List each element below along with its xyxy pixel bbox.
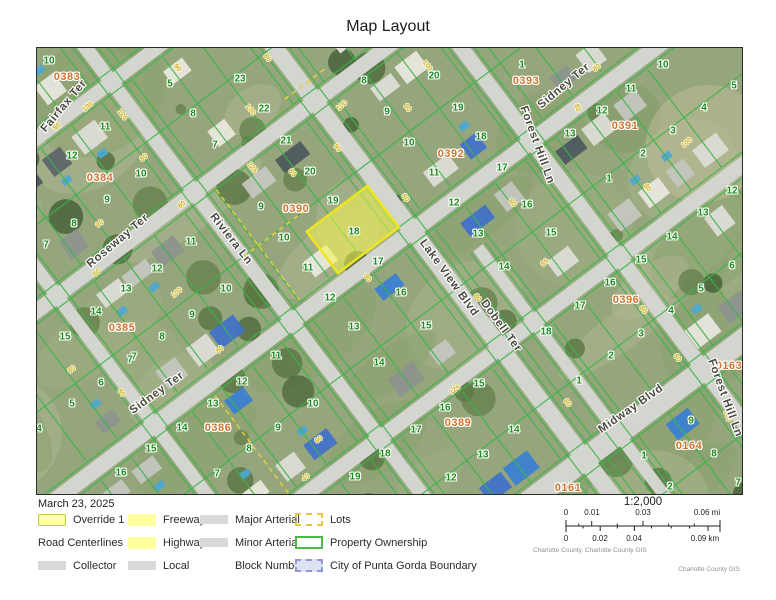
legend-column: Override 1Road CenterlinesCollector [38, 508, 124, 577]
scale-bar: 1:2,000 00.010.030. [520, 496, 760, 566]
legend-item-label: Freeway [163, 514, 205, 526]
scale-km-label: 0.02 [592, 534, 608, 543]
legend-column: LotsProperty OwnershipCity of Punta Gord… [295, 508, 477, 577]
scale-km-label: 0 [564, 534, 568, 543]
legend-item-label: Override 1 [73, 514, 124, 526]
legend-swatch-road [38, 561, 66, 570]
map-layout-page: Map Layout 10012580908010012580901008080… [0, 0, 776, 600]
legend-item: Major Arterial [200, 508, 304, 531]
legend-item-label: Highway [163, 537, 205, 549]
legend-swatch-none [200, 560, 228, 572]
legend-swatch-boundary [295, 559, 323, 572]
map-frame[interactable]: 1001258090801001258090100808080801009080… [36, 47, 743, 495]
legend-item-label: Lots [330, 514, 351, 526]
legend-item: Override 1 [38, 508, 124, 531]
legend-swatch-override [38, 514, 66, 526]
legend-swatch-yellow [128, 537, 156, 549]
legend-swatch-road [200, 515, 228, 524]
legend-item: Collector [38, 554, 124, 577]
map-credit: Charlotte County, Charlotte County GIS [533, 547, 647, 554]
legend-swatch-yellow [128, 514, 156, 526]
legend-item: Block Number [200, 554, 304, 577]
legend-swatch-road [128, 561, 156, 570]
legend-item-label: Collector [73, 560, 116, 572]
legend-item: Property Ownership [295, 531, 477, 554]
scale-ratio: 1:2,000 [518, 496, 768, 508]
legend-item-label: Local [163, 560, 189, 572]
scale-mi-label: 0.03 [635, 508, 651, 517]
legend-item-label: Road Centerlines [38, 537, 123, 549]
legend-item: Local [128, 554, 205, 577]
legend-item: Road Centerlines [38, 531, 124, 554]
aerial-map-canvas [37, 48, 742, 494]
footer-credit: Charlotte County GIS [678, 566, 740, 573]
legend-item-label: City of Punta Gorda Boundary [330, 560, 477, 572]
legend-item: Freeway [128, 508, 205, 531]
legend-item-label: Major Arterial [235, 514, 300, 526]
legend-item-label: Property Ownership [330, 537, 427, 549]
legend-column: FreewayHighwayLocal [128, 508, 205, 577]
legend-column: Major ArterialMinor ArterialBlock Number [200, 508, 304, 577]
scale-mi-label: 0.01 [584, 508, 600, 517]
legend-swatch-ownership [295, 536, 323, 549]
legend-item: Highway [128, 531, 205, 554]
scale-km-label: 0.09 km [691, 534, 719, 543]
scale-bar-ticks [562, 519, 722, 533]
legend-swatch-road [200, 538, 228, 547]
page-title: Map Layout [0, 18, 776, 36]
legend-item: Minor Arterial [200, 531, 304, 554]
legend-item-label: Block Number [235, 560, 304, 572]
legend-swatch-lots [295, 513, 323, 526]
scale-mi-label: 0 [564, 508, 568, 517]
legend-item-label: Minor Arterial [235, 537, 300, 549]
scale-mi-label: 0.06 mi [694, 508, 720, 517]
legend-item: City of Punta Gorda Boundary [295, 554, 477, 577]
legend-item: Lots [295, 508, 477, 531]
scale-km-label: 0.04 [626, 534, 642, 543]
